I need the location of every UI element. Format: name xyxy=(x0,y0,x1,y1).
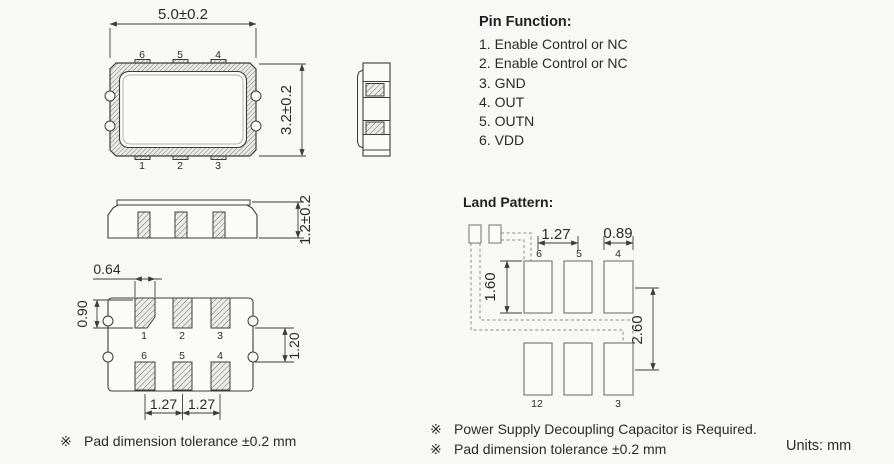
land-pad-1 xyxy=(524,343,552,395)
bottom-pad-5 xyxy=(173,362,192,390)
pad-label: 6 xyxy=(141,350,147,362)
land-pad-3 xyxy=(604,343,633,395)
note-left: ※ Pad dimension tolerance ±0.2 mm xyxy=(60,433,296,450)
land-pad-5 xyxy=(564,261,592,313)
note-text: Pad dimension tolerance ±0.2 mm xyxy=(84,433,296,449)
side-pad xyxy=(366,84,384,97)
pin-label: 6 xyxy=(139,49,145,61)
trace-vdd xyxy=(501,240,524,261)
pin-function-item: 2. Enable Control or NC xyxy=(479,54,628,73)
note-line: ※ Power Supply Decoupling Capacitor is R… xyxy=(430,419,757,439)
front-pad xyxy=(138,212,150,238)
front-pad xyxy=(175,212,187,238)
side-notch xyxy=(103,316,113,326)
pin-function-section: Pin Function: 1. Enable Control or NC 2.… xyxy=(479,14,628,151)
pin-function-item: 4. OUT xyxy=(479,93,628,112)
land-pad-label: 5 xyxy=(576,248,582,260)
package-lid xyxy=(120,72,247,148)
package-front-view: 1.2±0.2 xyxy=(108,195,314,245)
package-bottom-view: 1 2 3 6 5 4 0.64 0.90 1.20 xyxy=(74,261,302,420)
pin-function-item: 3. GND xyxy=(479,74,628,93)
land-pad-label: 6 xyxy=(536,248,542,260)
bottom-pad-3 xyxy=(211,298,230,328)
pad-label: 1 xyxy=(141,330,147,342)
pad-label: 4 xyxy=(217,350,223,362)
trace-vdd xyxy=(501,233,531,261)
pin-function-item: 5. OUTN xyxy=(479,112,628,131)
package-top-view: 6 5 4 1 2 3 5.0±0.2 3.2±0.2 xyxy=(105,6,306,172)
pad-label: 2 xyxy=(179,330,185,342)
land-pattern-title: Land Pattern: xyxy=(463,194,553,210)
bottom-pad-4 xyxy=(211,362,230,390)
land-pad-2 xyxy=(564,343,592,395)
note-text: Power Supply Decoupling Capacitor is Req… xyxy=(454,419,757,439)
dim-land-pad-height: 1.60 xyxy=(482,272,499,301)
dim-pad-pitch: 1.27 xyxy=(150,396,177,412)
side-notch xyxy=(248,352,258,362)
pin-label: 1 xyxy=(139,160,145,172)
land-pad-4 xyxy=(604,261,633,313)
pin-label: 4 xyxy=(215,49,221,61)
pad-label: 3 xyxy=(217,330,223,342)
land-pad-6 xyxy=(524,261,552,313)
pin-label: 5 xyxy=(177,49,183,61)
dim-pad-width: 0.64 xyxy=(93,261,120,277)
mechanical-drawing: 6 5 4 1 2 3 5.0±0.2 3.2±0.2 xyxy=(0,0,894,464)
capacitor-pad xyxy=(489,225,501,243)
side-notch xyxy=(251,121,261,131)
pin-function-title: Pin Function: xyxy=(479,14,628,30)
dim-land-pitch: 1.27 xyxy=(541,226,570,243)
pin-label: 2 xyxy=(177,160,183,172)
dim-pad-pitch: 1.27 xyxy=(188,396,215,412)
land-pad-label: 3 xyxy=(615,398,621,410)
dim-land-pad-width: 0.89 xyxy=(603,225,632,242)
pin-function-list: 1. Enable Control or NC 2. Enable Contro… xyxy=(479,35,628,151)
front-lid-plate xyxy=(117,200,250,205)
capacitor-pad xyxy=(469,225,481,243)
side-lid-plate xyxy=(358,70,364,148)
side-pad xyxy=(366,122,384,135)
dim-land-row-pitch: 2.60 xyxy=(629,315,646,344)
note-text: Pad dimension tolerance ±0.2 mm xyxy=(454,439,666,459)
side-notch xyxy=(248,316,258,326)
side-notch xyxy=(251,91,261,101)
side-notch xyxy=(105,121,115,131)
reference-mark: ※ xyxy=(60,433,84,450)
notes-right: ※ Power Supply Decoupling Capacitor is R… xyxy=(430,419,757,459)
datasheet-drawing-page: 6 5 4 1 2 3 5.0±0.2 3.2±0.2 xyxy=(0,0,894,464)
land-pad-label: 4 xyxy=(615,248,621,260)
reference-mark: ※ xyxy=(430,439,454,459)
reference-mark: ※ xyxy=(430,419,454,439)
land-pattern-drawing: 6 5 4 12 3 1.27 0.89 1.60 xyxy=(469,225,659,410)
side-notch xyxy=(105,91,115,101)
pin-label: 3 xyxy=(215,160,221,172)
dim-body-height: 3.2±0.2 xyxy=(278,85,295,135)
dim-package-thickness: 1.2±0.2 xyxy=(297,195,314,245)
dim-row-gap: 1.20 xyxy=(286,332,302,359)
bottom-pad-2 xyxy=(173,298,192,328)
dim-pad-height: 0.90 xyxy=(74,300,90,327)
land-pad-label: 12 xyxy=(531,398,543,410)
side-body xyxy=(363,63,390,156)
package-side-view xyxy=(358,63,391,156)
note-line: ※ Pad dimension tolerance ±0.2 mm xyxy=(430,439,757,459)
bottom-pad-6 xyxy=(135,362,155,390)
side-notch xyxy=(103,352,113,362)
pin-function-item: 1. Enable Control or NC xyxy=(479,35,628,54)
pad-label: 5 xyxy=(179,350,185,362)
pin-function-item: 6. VDD xyxy=(479,131,628,150)
units-label: Units: mm xyxy=(786,438,851,454)
front-pad xyxy=(213,212,225,238)
dim-body-width: 5.0±0.2 xyxy=(158,6,208,23)
